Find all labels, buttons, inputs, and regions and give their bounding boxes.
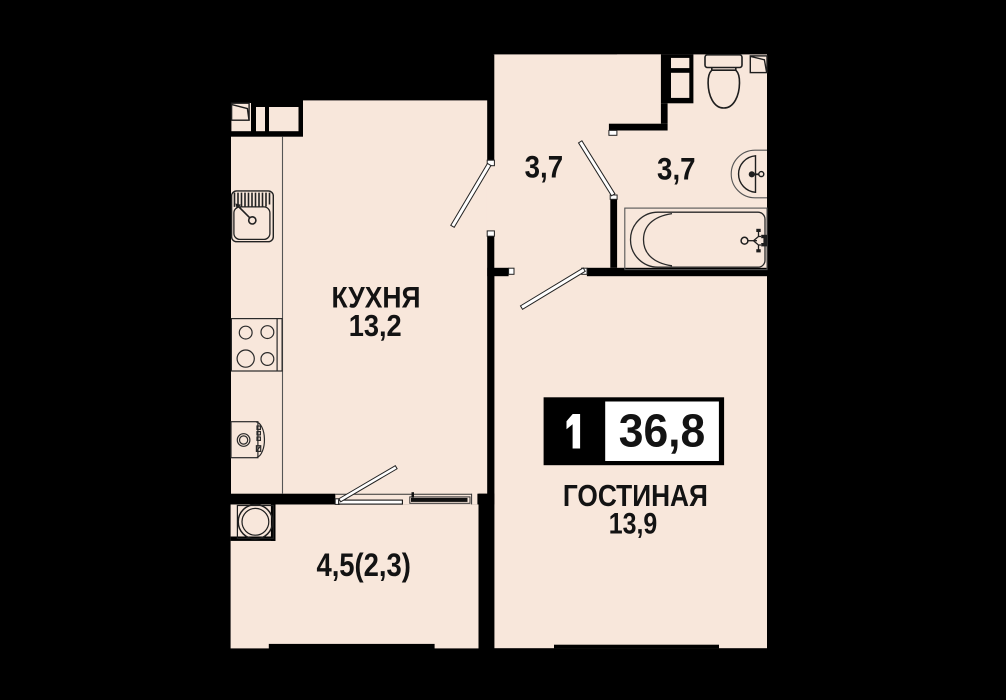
svg-text:13,2: 13,2: [349, 309, 402, 343]
svg-text:13,9: 13,9: [609, 508, 658, 541]
svg-text:3,7: 3,7: [657, 151, 696, 187]
svg-text:3,7: 3,7: [525, 149, 564, 185]
svg-text:36,8: 36,8: [619, 404, 706, 456]
svg-text:4,5(2,3): 4,5(2,3): [316, 547, 411, 583]
